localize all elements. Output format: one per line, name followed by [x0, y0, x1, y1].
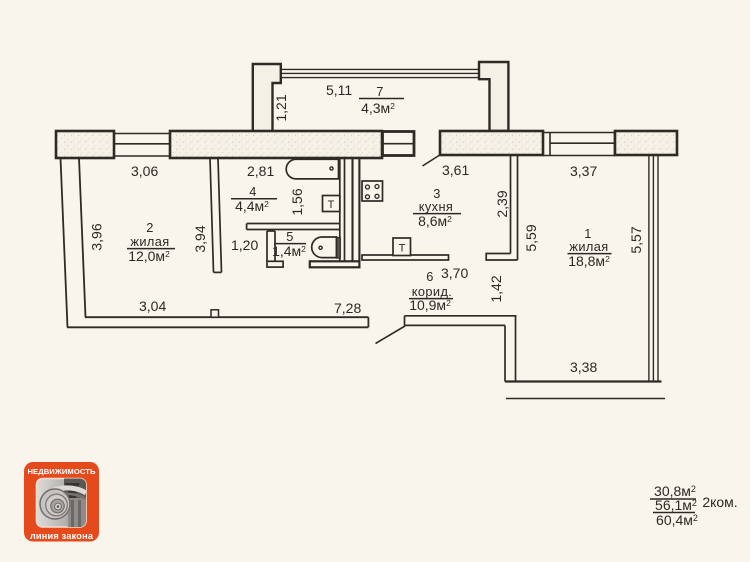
svg-text:жилая: жилая: [130, 234, 169, 249]
svg-text:5,57: 5,57: [628, 226, 644, 253]
svg-text:3,04: 3,04: [139, 298, 166, 314]
svg-text:7,28: 7,28: [334, 300, 361, 316]
svg-text:1,42: 1,42: [488, 275, 504, 302]
svg-text:1,21: 1,21: [273, 94, 289, 121]
svg-text:4: 4: [249, 184, 257, 199]
svg-text:4,3м2: 4,3м2: [361, 100, 395, 116]
svg-text:18,8м2: 18,8м2: [568, 253, 610, 269]
svg-text:7: 7: [376, 84, 384, 99]
svg-text:1,20: 1,20: [231, 237, 258, 253]
svg-text:2ком.: 2ком.: [702, 494, 737, 510]
svg-text:кухня: кухня: [419, 199, 454, 214]
svg-text:3,70: 3,70: [441, 265, 468, 281]
svg-text:56,1м2: 56,1м2: [655, 497, 697, 513]
svg-text:8,6м2: 8,6м2: [418, 213, 452, 229]
svg-text:3,61: 3,61: [442, 162, 469, 178]
svg-text:2,81: 2,81: [247, 163, 274, 179]
svg-text:12,0м2: 12,0м2: [128, 248, 170, 264]
svg-text:10,9м2: 10,9м2: [409, 297, 451, 313]
svg-text:6: 6: [426, 269, 434, 284]
svg-text:4,4м2: 4,4м2: [235, 198, 269, 214]
svg-text:3,94: 3,94: [192, 225, 208, 252]
svg-text:2: 2: [146, 220, 154, 235]
svg-text:3,38: 3,38: [570, 359, 597, 375]
svg-text:жилая: жилая: [569, 239, 608, 254]
svg-text:1,56: 1,56: [289, 188, 305, 215]
svg-text:T: T: [399, 243, 406, 255]
svg-text:2,39: 2,39: [494, 190, 510, 217]
svg-text:60,4м2: 60,4м2: [656, 512, 698, 528]
svg-text:5: 5: [286, 229, 294, 244]
svg-text:5,11: 5,11: [326, 82, 352, 98]
svg-text:5,59: 5,59: [523, 224, 539, 251]
svg-text:3,06: 3,06: [131, 163, 158, 179]
svg-text:1,4м2: 1,4м2: [272, 243, 306, 259]
svg-text:линия закона: линия закона: [30, 531, 94, 541]
svg-text:3,37: 3,37: [570, 163, 597, 179]
svg-text:3,96: 3,96: [89, 223, 105, 250]
svg-text:НЕДВИЖИМОСТЬ: НЕДВИЖИМОСТЬ: [27, 467, 95, 476]
svg-text:T: T: [328, 199, 335, 211]
